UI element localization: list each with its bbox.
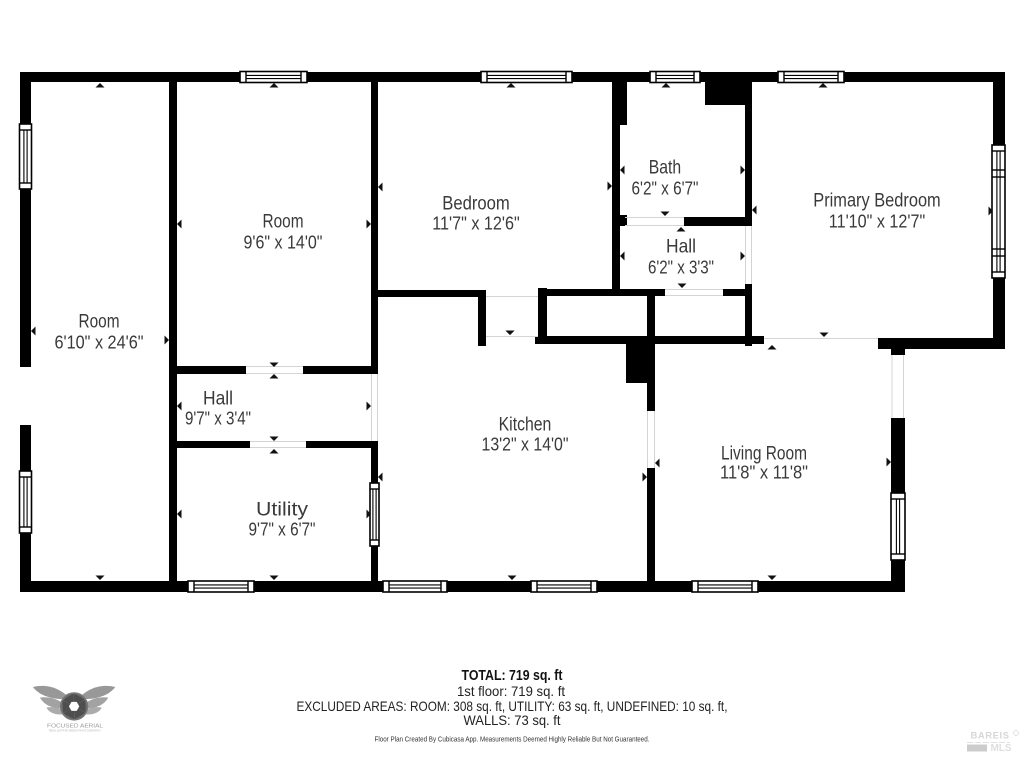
svg-text:Bath: Bath: [649, 158, 681, 179]
svg-text:6'2" x 6'7": 6'2" x 6'7": [632, 178, 699, 199]
svg-text:11'10" x 12'7": 11'10" x 12'7": [829, 211, 925, 232]
svg-text:13'2" x 14'0": 13'2" x 14'0": [482, 434, 569, 455]
svg-text:11'7" x 12'6": 11'7" x 12'6": [432, 213, 520, 234]
svg-text:Kitchen: Kitchen: [499, 415, 552, 436]
svg-text:Room: Room: [263, 212, 304, 233]
svg-text:BAREIS: BAREIS: [971, 731, 1010, 742]
svg-text:TOTAL: 719 sq. ft: TOTAL: 719 sq. ft: [462, 668, 563, 684]
svg-text:Hall: Hall: [666, 237, 696, 258]
svg-text:11'8" x 11'8": 11'8" x 11'8": [720, 462, 808, 483]
svg-text:Bedroom: Bedroom: [442, 194, 510, 215]
svg-text:Hall: Hall: [203, 389, 233, 410]
svg-text:1st floor: 719 sq. ft: 1st floor: 719 sq. ft: [457, 683, 565, 699]
svg-text:Room: Room: [79, 312, 120, 333]
svg-text:9'7" x 6'7": 9'7" x 6'7": [249, 519, 316, 540]
svg-text:REAL ESTATE MEDIA PHOTOGRAPHY: REAL ESTATE MEDIA PHOTOGRAPHY: [49, 729, 101, 733]
svg-text:Utility: Utility: [256, 500, 309, 521]
svg-text:Floor Plan Created By Cubicasa: Floor Plan Created By Cubicasa App. Meas…: [375, 737, 650, 744]
svg-text:9'7" x 3'4": 9'7" x 3'4": [185, 408, 251, 429]
svg-text:6'2" x 3'3": 6'2" x 3'3": [648, 257, 714, 278]
svg-text:6'10" x 24'6": 6'10" x 24'6": [55, 332, 144, 353]
svg-text:Primary Bedroom: Primary Bedroom: [813, 191, 940, 212]
svg-text:9'6" x 14'0": 9'6" x 14'0": [244, 232, 323, 253]
svg-text:WALLS: 73 sq. ft: WALLS: 73 sq. ft: [464, 712, 561, 728]
svg-text:MLS: MLS: [990, 743, 1011, 754]
